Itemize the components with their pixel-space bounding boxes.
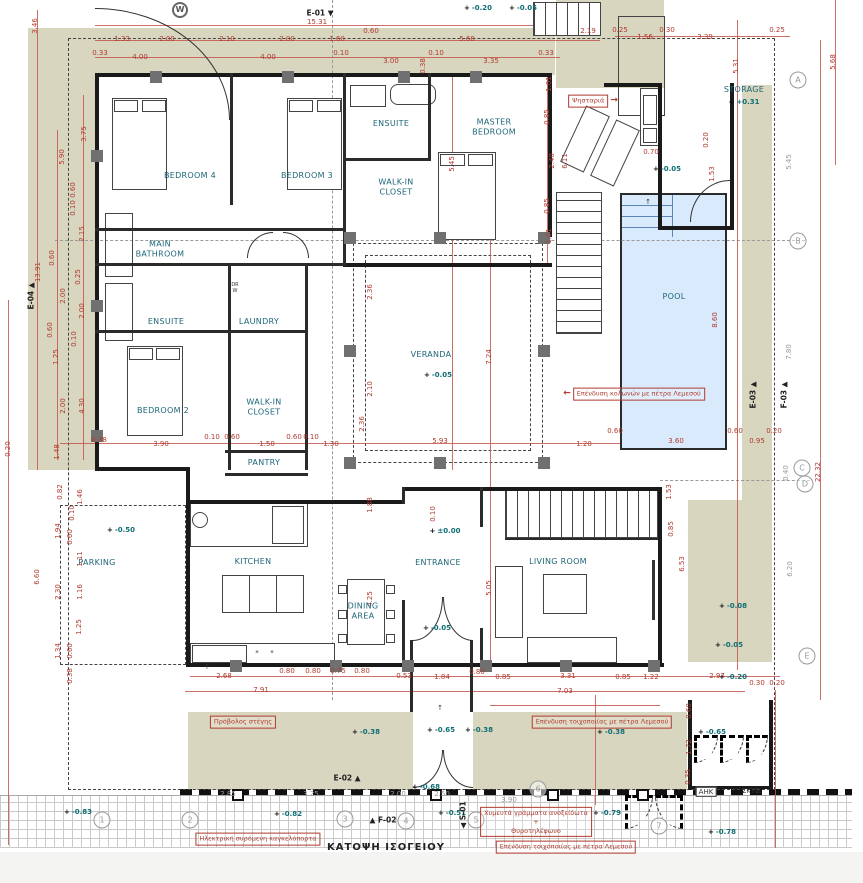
wall-segment [186,663,664,667]
annotation-text: Πρόβολος στέγης [210,716,276,729]
room-label-dining-area: DINING AREA [348,601,379,620]
dimension-label: 0.60 [727,427,743,435]
room-label-parking: PARKING [78,558,115,568]
wall-segment [658,487,662,667]
grid-bubble-c: C [794,460,811,477]
wall-segment [95,73,552,77]
annotation-note: Χυμευτά γράμματα ανοξείδωτα + Θυροτηλέφω… [480,807,592,837]
wall-segment [225,450,308,453]
dimension-label: 0.30 [749,679,765,687]
dimension-label: 1.22 [643,673,659,681]
dimension-label: 0.25 [74,269,82,285]
dimension-line [37,10,38,470]
section-marker-f-02: ▲ F-02 [370,816,397,825]
dimension-line [835,0,836,165]
dimension-label: 5.90 [58,149,66,165]
misc-label: * [255,649,259,657]
sofa [527,637,617,663]
dimension-label: 2.19 [580,27,596,35]
dimension-label: 0.33 [92,49,108,57]
room-label-kitchen: KITCHEN [235,557,272,567]
wall-segment [345,158,431,161]
dimension-label: 5.93 [432,437,448,445]
dimension-label: 1.53 [708,166,716,182]
dimension-label: 0.35 [684,769,692,785]
wall-segment [658,83,662,230]
column [344,232,356,244]
dimension-label: 0.60 [685,703,693,719]
wall-segment [658,226,734,230]
dimension-label: 1.20 [576,440,592,448]
furniture [386,585,395,594]
grid-bubble-a: A [790,72,807,89]
dimension-label: 1.25 [75,619,83,635]
annotation-text: Επένδυση κολωνών με πέτρα Λεμεσού [573,388,705,401]
floor-plan-canvas: ΚΑΤΟΨΗ ΙΣΟΓΕΙΟΥ 15.311.332.002.102.001.6… [0,0,863,883]
dimension-line [737,20,738,670]
dimension-label: 1.84 [434,673,450,681]
dimension-label: 3.75 [80,126,88,142]
furniture [276,575,277,613]
dimension-label: 6.53 [678,556,686,572]
dimension-label: 7.03 [557,687,573,695]
gate-post [547,789,559,801]
annotation-note: Ηλεκτρική συρόμενη καγκελόπορτα [195,833,320,846]
dimension-label: 0.95 [749,437,765,445]
dimension-label: 2.00 [59,398,67,414]
dimension-line [60,443,620,444]
wall-segment [428,73,431,161]
dimension-label: 1.01 [545,76,553,92]
level-marker: -0.83 [64,808,92,816]
wall-segment [505,538,658,540]
column [344,345,356,357]
dimension-label: 0.10 [204,433,220,441]
level-marker: -0.68 [412,783,440,791]
wall-segment [186,500,190,667]
dimension-label: 0.10 [303,433,319,441]
section-marker-e-04: E-04 ▲ [27,282,36,309]
dimension-label: 1.94 [54,523,62,539]
dimension-label: 0.60 [286,433,302,441]
room-label-storage: STORAGE [724,85,764,95]
dimension-label: 0.60 [46,322,54,338]
wall-segment [402,600,405,667]
dimension-label: 1.34 [54,643,62,659]
dimension-label: 0.80 [469,668,485,676]
dimension-label: 0.60 [224,433,240,441]
dimension-label: 2.36 [358,416,366,432]
stairs [505,490,658,538]
room-label-veranda: VERANDA [411,350,452,360]
dimension-label: 0.60 [69,182,77,198]
level-marker: -0.05 [424,371,452,379]
dimension-label: 0.38 [419,58,427,74]
dimension-label: 7.80 [785,344,793,360]
dimension-label: 0.80 [305,667,321,675]
annotation-note: Επένδυση τοιχοποιίας με πέτρα Λεμεσού [532,716,672,729]
column [91,300,103,312]
grid-bubble-d: D [797,476,814,493]
furniture [289,100,313,112]
section-marker-f-03: F-03 ▲ [780,382,789,409]
dimension-label: 0.60 [66,529,74,545]
dimension-label: 5.31 [732,58,740,74]
dimension-label: 1.72 [685,739,693,755]
dimension-label: 1.88 [366,497,374,513]
room-label-entrance: ENTRANCE [415,558,461,568]
dimension-label: 2.68 [216,672,232,680]
dimension-label: 0.85 [667,521,675,537]
dimension-label: 7.24 [485,349,493,365]
dimension-label: 0.10 [429,506,437,522]
level-marker: -0.82 [274,810,302,818]
room-label-laundry: LAUNDRY [239,317,279,327]
level-marker: -0.78 [708,828,736,836]
dimension-label: 2.36 [366,284,374,300]
dimension-label: 1.50 [259,440,275,448]
dimension-label: 5.45 [785,154,793,170]
dimension-line [8,300,9,845]
misc-label: ΑΗΚ [696,787,717,797]
annotation-text: Επένδυση τοιχοποιίας με πέτρα Λεμεσού [532,716,672,729]
misc-label: ↑ [204,663,210,671]
section-marker-s-01: ◀ S-01 [459,801,468,828]
column [91,150,103,162]
wall-segment [95,228,345,231]
grid-bubble-2: 2 [182,812,199,829]
dimension-label: 0.10 [69,200,77,216]
dimension-label: 2.10 [366,381,374,397]
grid-bubble-6: 6 [530,781,547,798]
dimension-label: 0.10 [70,331,78,347]
furniture [386,634,395,643]
level-marker: -0.38 [465,726,493,734]
room-label-bedroom-2: BEDROOM 2 [137,406,189,416]
dimension-label: 0.38 [66,668,74,684]
dimension-label: 3.90 [153,440,169,448]
wall-segment [343,263,552,267]
room-label-main-bathroom: MAIN BATHROOM [136,239,185,258]
misc-label: * [270,649,274,657]
misc-label: ↑ [645,198,651,206]
wall-segment [95,330,307,333]
wall-segment [769,700,773,790]
dimension-label: 0.85 [543,109,551,125]
dimension-label: 0.60 [363,27,379,35]
room-label-walk-in-closet: WALK-IN CLOSET [246,397,281,416]
dimension-label: 1.33 [114,35,130,43]
shower [105,213,133,277]
dimension-label: 0.20 [766,427,782,435]
dimension-label: 0.60 [48,250,56,266]
level-marker: -0.05 [509,4,537,12]
dimension-label: 3.39 [697,33,713,41]
wall-segment [225,473,308,476]
column [538,345,550,357]
gate-post [637,789,649,801]
room-label-pool: POOL [662,292,685,302]
sidewalk-hatch [0,795,852,848]
dimension-label: 0.70 [643,148,659,156]
dimension-label: 4.00 [132,53,148,61]
level-marker: -0.65 [698,728,726,736]
dimension-label: 7.91 [253,686,269,694]
dimension-line [490,235,491,665]
grid-bubble-4: 4 [398,813,415,830]
dimension-label: 5.68 [829,54,837,70]
dimension-label: 2.00 [59,288,67,304]
dimension-label: 0.10 [68,505,76,521]
dimension-label: 0.20 [702,132,710,148]
column [230,660,242,672]
wall-segment [402,487,662,491]
dimension-label: 0.30 [659,26,675,34]
wall-segment [186,467,190,504]
annotation-text: Ηλεκτρική συρόμενη καγκελόπορτα [195,833,320,846]
dimension-label: 4.30 [78,398,86,414]
dimension-label: 3.25 [303,790,319,798]
dimension-label: 1.56 [637,33,653,41]
dimension-label: 4.00 [260,53,276,61]
dimension-line [490,705,660,706]
level-marker: +0.31 [728,98,759,106]
tv-unit [652,560,655,620]
level-marker: ±0.00 [429,527,460,535]
dimension-label: 0.33 [538,49,554,57]
column [150,71,162,83]
dimension-label: 0.20 [4,441,12,457]
furniture [338,634,347,643]
room-label-bedroom-4: BEDROOM 4 [164,171,216,181]
sofa [495,566,523,638]
room-label-ensuite: ENSUITE [373,119,409,129]
dimension-label: 0.85 [543,198,551,214]
dimension-label: 0.80 [279,667,295,675]
wall-segment [604,83,662,87]
grid-bubble-3: 3 [337,811,354,828]
dimension-label: 0.25 [769,26,785,34]
dimension-label: 0.75 [330,667,346,675]
dimension-label: 1.53 [665,484,673,500]
annotation-note: Ψησταριά→ [568,95,618,108]
section-marker-e-03: E-03 ▲ [749,381,758,408]
dimension-label: 3.31 [560,672,576,680]
dimension-label: 0.60 [66,643,74,659]
dimension-label: 0.85 [495,673,511,681]
furniture [249,575,250,613]
grid-bubble-e: E [799,648,816,665]
dimension-label: 5.45 [448,156,456,172]
furniture [156,348,180,360]
level-marker: -0.50 [107,526,135,534]
furniture [643,95,657,125]
dimension-label: 2.00 [279,35,295,43]
dimension-label: 22.32 [814,462,822,482]
dimension-label: 15.31 [307,18,327,26]
dimension-label: 2.40 [548,153,556,169]
stairs [556,192,602,334]
wall-segment [480,487,483,527]
dimension-label: 0.25 [612,26,628,34]
dimension-label: 5.05 [485,580,493,596]
grid-bubble-7: 7 [651,818,668,835]
grid-bubble-1: 1 [94,812,111,829]
level-marker: -0.38 [352,728,380,736]
dimension-label: 1.48 [53,444,61,460]
column [402,660,414,672]
dimension-label: 1.60 [329,35,345,43]
column [434,457,446,469]
room-label-ensuite: ENSUITE [148,317,184,327]
dimension-line [775,690,776,848]
dimension-label: 0.38 [91,436,107,444]
level-marker: -0.65 [427,726,455,734]
dimension-label: 6.60 [33,569,41,585]
section-marker-e-02: E-02 ▲ [333,774,360,783]
annotation-note: Επένδυση τοιχοποιίας με πέτρα Λεμεσού [496,841,636,854]
room-label-bedroom-3: BEDROOM 3 [281,171,333,181]
dimension-label: 0.53 [396,672,412,680]
dimension-label: 2.30 [54,584,62,600]
furniture [192,512,208,528]
dimension-label: 1.46 [76,489,84,505]
leader-arrow-icon: → [610,96,618,107]
dimension-label: 0.60 [607,427,623,435]
coffee-table [543,574,587,614]
dimension-label: 0.10 [428,49,444,57]
misc-label: ↑ [437,704,443,712]
room-label-master-bedroom: MASTER BEDROOM [472,117,516,136]
shower [350,85,386,107]
grid-bubble-b: B [790,233,807,250]
annotation-text: Χυμευτά γράμματα ανοξείδωτα + Θυροτηλέφω… [480,807,592,837]
misc-label: DR W [231,282,238,294]
level-marker: -0.05 [715,641,743,649]
footer-margin [0,852,863,883]
dimension-label: 1.25 [52,349,60,365]
dimension-label: 6.11 [561,153,569,169]
column [470,71,482,83]
level-marker: -0.38 [597,728,625,736]
dimension-label: 0.82 [56,484,64,500]
misc-label: ΣΚΥΒ. [742,787,762,795]
column [344,457,356,469]
dimension-label: 3.90 [501,796,517,804]
dimension-label: 1.01 [545,228,553,244]
dimension-line [452,75,453,470]
dimension-label: 0.80 [354,667,370,675]
furniture [338,585,347,594]
wall-segment [95,73,99,471]
dimension-label: 13.91 [34,262,42,282]
column [398,71,410,83]
leader-arrow-icon: ← [563,389,571,400]
dimension-label: 0.85 [615,673,631,681]
dimension-label: 0.10 [333,49,349,57]
wall-segment [230,73,233,205]
furniture [468,154,493,166]
room-label-living-room: LIVING ROOM [529,557,587,567]
dimension-label: 3.35 [483,57,499,65]
dimension-line [190,676,780,677]
dimension-line [595,695,596,805]
column [648,660,660,672]
dimension-label: 2.10 [219,35,235,43]
dimension-label: 5.68 [459,35,475,43]
furniture [317,100,341,112]
level-marker: -0.05 [653,165,681,173]
water-meter-icon: W [172,2,188,18]
level-marker: -0.20 [464,4,492,12]
dimension-label: 1.30 [323,440,339,448]
kitchen-island [222,575,304,613]
dimension-label: 0.40 [782,465,790,481]
level-marker: -0.20 [719,673,747,681]
furniture [272,506,304,544]
room-label-walk-in-closet: WALK-IN CLOSET [378,177,413,196]
section-marker-e-01: E-01 ▼ [306,9,333,18]
dimension-label: 3.60 [668,437,684,445]
dimension-label: 2.00 [159,35,175,43]
dimension-label: 2.85 [220,790,236,798]
drawing-title: ΚΑΤΟΨΗ ΙΣΟΓΕΙΟΥ [327,842,445,854]
dimension-label: 6.20 [786,561,794,577]
column [282,71,294,83]
furniture [338,610,347,619]
level-marker: -0.08 [719,602,747,610]
dimension-label: 2.00 [390,790,406,798]
annotation-text: Επένδυση τοιχοποιίας με πέτρα Λεμεσού [496,841,636,854]
furniture [386,610,395,619]
furniture [129,348,153,360]
wall-segment [402,487,405,504]
room-label-pantry: PANTRY [248,458,280,468]
annotation-text: Ψησταριά [568,95,608,108]
dimension-line [185,691,745,692]
annotation-note: Πρόβολος στέγης [210,716,276,729]
dimension-label: 3.00 [383,57,399,65]
dimension-label: 2.15 [78,226,86,242]
furniture [643,128,657,143]
column [538,457,550,469]
dimension-label: 1.16 [76,584,84,600]
level-marker: -0.05 [423,624,451,632]
column [434,232,446,244]
dimension-label: 2.00 [78,303,86,319]
annotation-note: ←Επένδυση κολωνών με πέτρα Λεμεσού [563,388,705,401]
dimension-label: 0.20 [769,679,785,687]
wall-segment [95,467,190,471]
level-marker: -0.79 [593,809,621,817]
column [560,660,572,672]
dimension-label: 8.60 [711,312,719,328]
dimension-label: 3.46 [31,18,39,34]
dimension-line [820,40,821,700]
